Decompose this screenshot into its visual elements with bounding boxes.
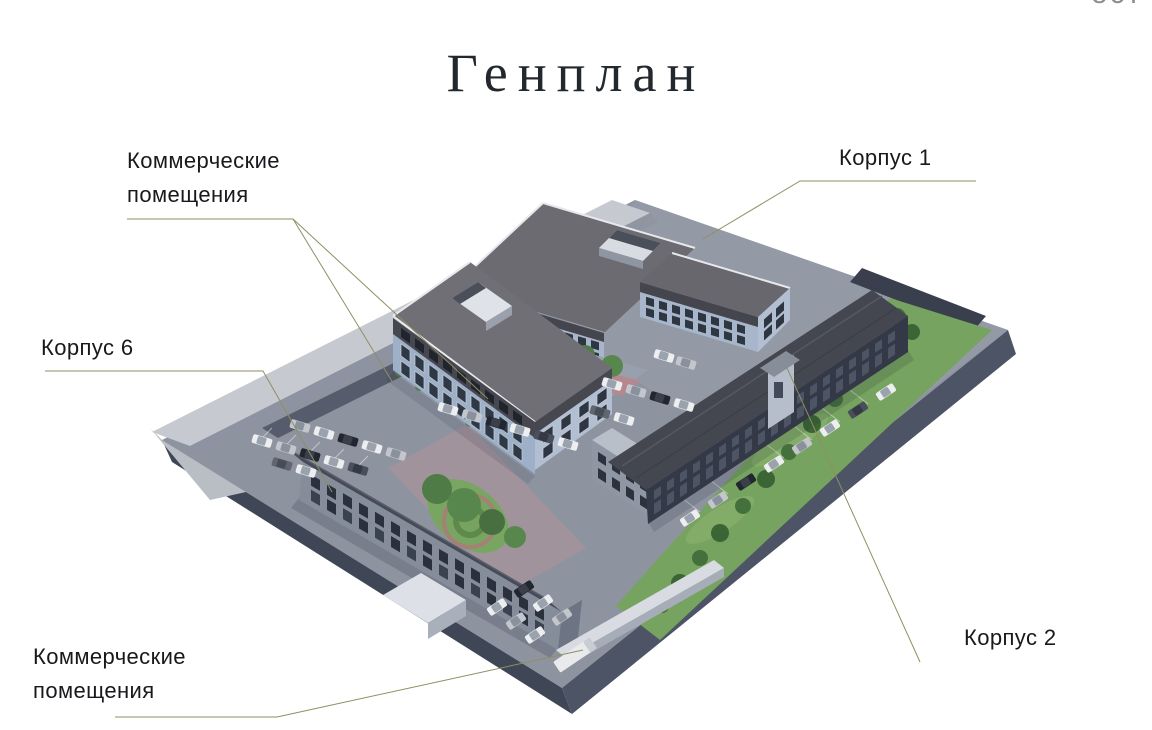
label-commercial-top-line1: Коммерческие <box>127 144 280 178</box>
page-root: Генплан ост Коммерческие помещения Корпу… <box>0 0 1152 730</box>
label-korpus-2: Корпус 2 <box>964 621 1057 655</box>
partial-logo: ост <box>1091 0 1152 13</box>
label-korpus-6: Корпус 6 <box>41 331 134 365</box>
label-commercial-bottom-line2: помещения <box>33 674 186 708</box>
page-title: Генплан <box>0 42 1152 104</box>
leader-korpus-1 <box>703 181 976 239</box>
partial-logo-text: ост <box>1091 0 1152 11</box>
label-commercial-bottom: Коммерческие помещения <box>33 640 186 708</box>
label-commercial-top: Коммерческие помещения <box>127 144 280 212</box>
label-commercial-bottom-line1: Коммерческие <box>33 640 186 674</box>
label-korpus-1: Корпус 1 <box>839 141 932 175</box>
label-commercial-top-line2: помещения <box>127 178 280 212</box>
